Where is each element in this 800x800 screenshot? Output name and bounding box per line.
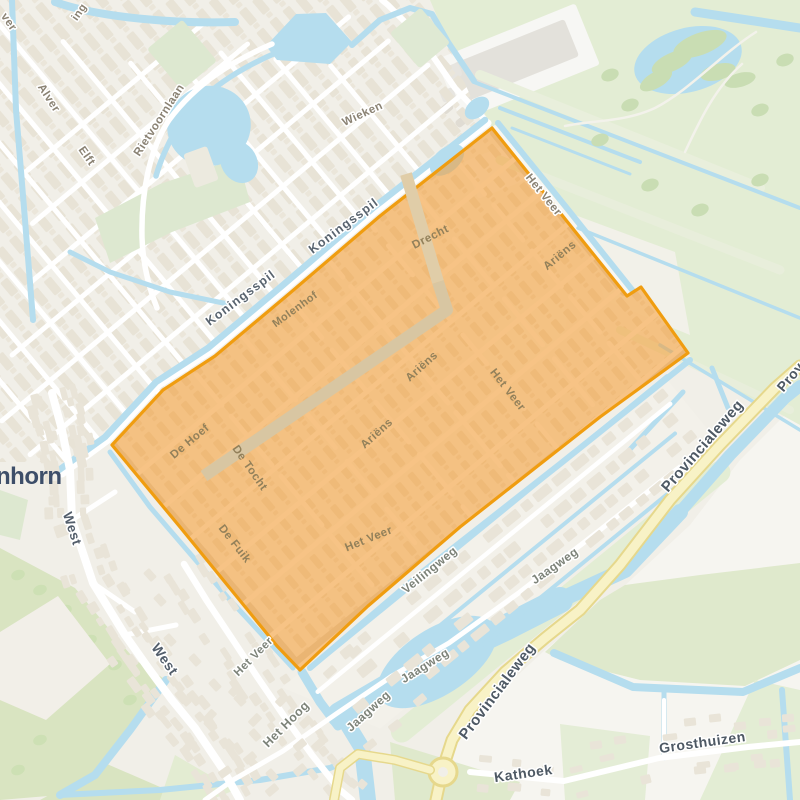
svg-text:nhorn: nhorn <box>0 463 61 490</box>
